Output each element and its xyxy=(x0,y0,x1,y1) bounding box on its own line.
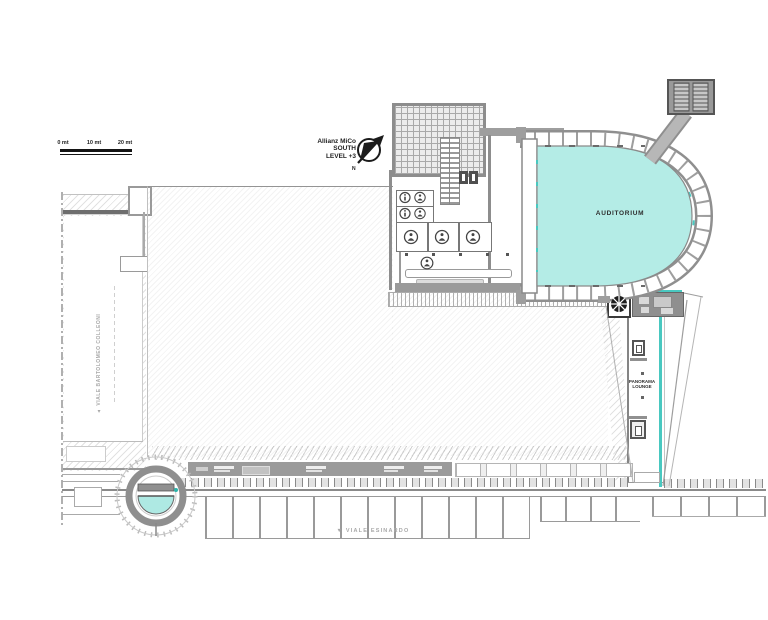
plan-title-line-1: Allianz MiCo xyxy=(294,138,356,145)
column-dot-5 xyxy=(506,253,509,256)
street-label-west: ▲ VIALE BARTOLOMEO COLLEONI xyxy=(96,280,102,414)
parking-bays-east xyxy=(652,497,766,517)
colonnade-bases xyxy=(152,478,632,487)
room-label-smudge xyxy=(384,470,398,472)
lounge-south-box xyxy=(634,472,660,483)
service-room-1 xyxy=(396,190,434,207)
plan-title: Allianz MiCo SOUTH LEVEL +3 xyxy=(294,138,356,160)
elevator-inner-square xyxy=(636,345,642,353)
panorama-lounge-label: PANORAMA LOUNGE xyxy=(622,379,662,389)
lounge-outer-line xyxy=(664,312,665,486)
connector-line-1 xyxy=(62,474,120,475)
main-hall-roof-east xyxy=(392,288,608,456)
west-building-interior xyxy=(64,216,143,442)
room-label-smudge xyxy=(214,470,230,472)
foyer-top-wall xyxy=(480,128,564,136)
elevator-shaft-1 xyxy=(459,171,468,184)
room-label-smudge xyxy=(424,470,438,472)
lounge-elevator-label-smudge-2 xyxy=(629,416,647,419)
west-building-base-line xyxy=(63,441,143,442)
elevator-shaft-2 xyxy=(469,171,478,184)
scale-bar-tick-20: 20 mt xyxy=(114,140,136,146)
escalator-bank xyxy=(440,137,460,205)
column-dot-2 xyxy=(432,253,435,256)
panorama-lounge-room xyxy=(627,306,663,483)
arcade-label-bar xyxy=(188,462,452,476)
west-building-base-wall xyxy=(63,468,145,470)
plan-title-line-2: SOUTH xyxy=(294,145,356,152)
skylight-grid-roof xyxy=(392,103,486,177)
core-south-wall xyxy=(395,283,608,292)
lounge-glass-wall xyxy=(659,310,662,487)
north-arrow-icon: N xyxy=(352,135,384,172)
lounge-elevator-icon-1 xyxy=(632,340,645,356)
scale-bar-line-thin xyxy=(60,154,132,155)
room-label-smudge xyxy=(306,466,326,469)
furniture-rect xyxy=(661,308,673,314)
connector-room xyxy=(74,487,102,507)
external-stair-block xyxy=(668,80,714,114)
lounge-column-dot-1 xyxy=(641,372,644,375)
street-annotation-dashes xyxy=(114,286,115,404)
service-block-teal-edge xyxy=(632,290,682,292)
backstage-strip xyxy=(522,139,537,293)
room-label-smudge xyxy=(424,466,442,469)
service-room-2 xyxy=(396,206,434,223)
room-label-smudge xyxy=(214,466,234,469)
column-dot-3 xyxy=(459,253,462,256)
room-label-smudge xyxy=(306,470,322,472)
room-label-smudge xyxy=(196,467,208,471)
lounge-elevator-icon-2 xyxy=(630,420,646,439)
reception-counter-1 xyxy=(405,269,512,278)
panorama-lounge-label-line-2: LOUNGE xyxy=(622,384,662,389)
north-bridge xyxy=(650,113,686,160)
west-step-room xyxy=(120,256,148,272)
svg-text:N: N xyxy=(352,166,356,172)
core-right-wall xyxy=(488,135,491,291)
furniture-rect xyxy=(653,296,672,308)
ramp-pool xyxy=(138,496,174,514)
spiral-stair-box xyxy=(607,291,631,318)
scale-bar-tick-10: 10 mt xyxy=(83,140,105,146)
column-dot-1 xyxy=(405,253,408,256)
floor-plan-canvas: N 0 mt 10 mt 20 mt Allianz MiCo SOUTH LE… xyxy=(0,0,768,620)
west-building-base-room xyxy=(66,446,106,462)
arcade-door-row xyxy=(455,463,633,477)
restroom-divider-1 xyxy=(427,223,429,251)
restroom-divider-2 xyxy=(458,223,460,251)
lounge-service-block xyxy=(632,292,684,317)
scale-bar-line-thick xyxy=(60,149,132,152)
core-left-wall xyxy=(389,170,392,290)
furniture-rect xyxy=(641,307,649,313)
connector-line-3 xyxy=(62,514,120,515)
lounge-elevator-label-smudge-1 xyxy=(630,358,647,361)
scale-bar-tick-0: 0 mt xyxy=(53,140,73,146)
room-label-smudge xyxy=(384,466,404,469)
elevator-inner-square xyxy=(635,426,642,436)
connector-line-2 xyxy=(62,481,118,482)
column-dot-4 xyxy=(486,253,489,256)
main-hall-south-strip xyxy=(152,446,628,460)
colonnade-bases-east xyxy=(664,479,766,488)
south-terrace-treads xyxy=(388,292,614,307)
parking-bays-mid xyxy=(540,497,640,522)
furniture-rect xyxy=(639,297,649,304)
plan-title-line-3: LEVEL +3 xyxy=(294,153,356,160)
restroom-row xyxy=(396,222,492,252)
room-label-smudge xyxy=(242,466,270,475)
street-edge-line-1 xyxy=(62,489,766,491)
auditorium-label: AUDITORIUM xyxy=(575,210,665,217)
street-label-south: ▼ VIALE ESINARDO xyxy=(315,528,431,534)
main-hall-roof-west xyxy=(147,186,393,457)
lounge-column-dot-2 xyxy=(641,396,644,399)
